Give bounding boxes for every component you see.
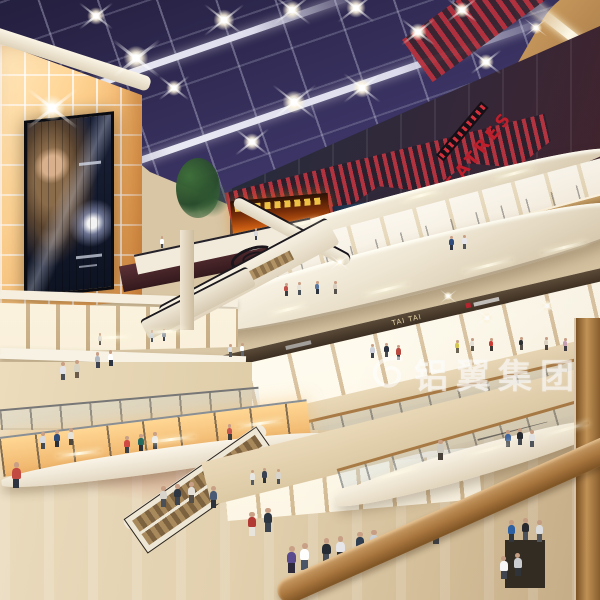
person-legs	[153, 443, 157, 449]
ceiling-starburst-light	[529, 21, 543, 35]
person	[124, 436, 130, 453]
person-torso	[124, 440, 130, 447]
person	[522, 518, 529, 540]
person	[228, 344, 232, 357]
person-legs	[13, 479, 19, 488]
person-torso	[174, 489, 181, 498]
person-torso	[322, 544, 331, 555]
person-torso	[500, 561, 508, 571]
person-legs	[109, 360, 113, 366]
person-torso	[160, 491, 167, 500]
person	[333, 281, 337, 294]
person-legs	[189, 495, 194, 503]
person-torso	[517, 432, 523, 439]
person	[449, 236, 454, 250]
shop-sign	[285, 340, 311, 350]
person-legs	[96, 362, 100, 368]
sparkle-light	[540, 299, 554, 313]
person-head	[161, 486, 166, 491]
person	[500, 556, 508, 579]
person-legs	[99, 341, 102, 345]
ceiling-starburst-light	[122, 44, 150, 72]
person-torso	[227, 428, 232, 435]
person-legs	[509, 534, 514, 542]
person	[287, 546, 296, 573]
advertising-billboard	[24, 111, 114, 298]
watermark-text: 铝翼集团	[414, 349, 582, 398]
person-torso	[536, 525, 543, 534]
person-torso	[108, 354, 113, 361]
dark-storefront	[505, 540, 545, 588]
person	[68, 428, 74, 445]
person	[12, 462, 21, 488]
person	[160, 236, 164, 248]
ceiling-starburst-light	[242, 132, 262, 152]
person-legs	[298, 290, 301, 295]
ceiling-starburst-light	[165, 79, 183, 97]
billboard-text-mark	[79, 264, 97, 268]
billboard-text-mark	[76, 253, 102, 259]
person-legs	[163, 337, 166, 341]
ceiling-starburst-light	[212, 8, 236, 32]
person	[254, 228, 258, 240]
person	[462, 235, 467, 249]
person-torso	[437, 444, 444, 452]
person	[40, 432, 46, 449]
person-legs	[265, 523, 271, 532]
person-head	[175, 484, 180, 489]
person-legs	[75, 372, 79, 378]
ceiling-starburst-light	[477, 53, 495, 71]
person-legs	[151, 338, 154, 342]
person-torso	[210, 491, 217, 500]
person	[297, 282, 301, 295]
person-legs	[139, 445, 143, 451]
person-head	[14, 462, 20, 468]
person-head	[109, 350, 113, 354]
person	[250, 470, 255, 485]
person	[248, 512, 256, 536]
ceiling-starburst-light	[281, 0, 303, 21]
person	[160, 486, 167, 507]
person	[54, 430, 60, 447]
person	[138, 434, 144, 451]
person-torso	[505, 434, 511, 441]
person-head	[189, 482, 194, 487]
billboard-text-mark	[79, 160, 101, 165]
person-torso	[529, 434, 535, 441]
shop-sign-red-logo	[465, 295, 501, 309]
person-legs	[41, 443, 45, 449]
ceiling-starburst-light	[453, 1, 471, 19]
person	[315, 281, 319, 294]
person-torso	[300, 549, 309, 560]
person-torso	[74, 364, 80, 372]
person-legs	[263, 478, 266, 483]
person-legs	[518, 439, 522, 445]
structural-column	[180, 230, 194, 330]
person-legs	[537, 534, 542, 542]
person	[264, 508, 272, 532]
person-torso	[287, 552, 296, 563]
person-legs	[450, 245, 453, 250]
person-torso	[248, 517, 256, 527]
person	[437, 440, 444, 460]
person-legs	[523, 532, 528, 540]
person-torso	[264, 513, 272, 523]
ceiling-starburst-light	[351, 77, 373, 99]
person-legs	[530, 441, 534, 447]
person-legs	[211, 500, 216, 508]
sparkle-light	[443, 291, 453, 301]
person	[60, 362, 66, 380]
ceiling-starburst-light	[37, 93, 67, 123]
person	[240, 343, 244, 356]
person	[227, 424, 232, 440]
person-legs	[125, 447, 129, 453]
person-torso	[508, 525, 515, 534]
person-torso	[336, 542, 345, 553]
person	[276, 469, 281, 484]
person-legs	[229, 352, 232, 357]
person-torso	[40, 436, 46, 443]
person-legs	[285, 291, 288, 296]
person-legs	[438, 453, 443, 460]
watermark: 铝翼集团	[368, 346, 588, 400]
person-torso	[514, 558, 522, 568]
person-legs	[334, 289, 337, 294]
person-torso	[54, 434, 60, 441]
person-legs	[463, 244, 466, 249]
person-legs	[55, 441, 59, 447]
person-torso	[138, 438, 144, 445]
person-legs	[249, 527, 255, 536]
person	[300, 543, 309, 570]
person	[536, 520, 543, 542]
sparkle-light	[334, 256, 346, 268]
person-legs	[161, 244, 164, 248]
person-torso	[522, 523, 529, 532]
person-legs	[241, 351, 244, 356]
person-legs	[161, 499, 166, 507]
person	[108, 350, 113, 366]
person	[529, 430, 535, 447]
person-legs	[69, 439, 73, 445]
sparkle-light	[480, 311, 494, 325]
person-legs	[288, 563, 294, 573]
ceiling-starburst-light	[281, 89, 307, 115]
red-logo-icon	[465, 302, 471, 308]
watermark-swirl-logo	[368, 353, 408, 393]
person-legs	[277, 479, 280, 484]
person-legs	[251, 480, 254, 485]
person-torso	[188, 487, 195, 496]
person-legs	[61, 374, 65, 380]
person-legs	[255, 236, 258, 240]
person	[95, 352, 100, 368]
person	[210, 486, 217, 508]
person-legs	[316, 289, 319, 294]
ceiling-starburst-light	[408, 22, 428, 42]
person-torso	[95, 356, 100, 363]
shop-sign-text-bar	[473, 297, 499, 307]
person-head	[96, 352, 100, 356]
mall-atrium-rendering: THEATRES TAI TAI	[0, 0, 600, 600]
person-head	[338, 536, 344, 542]
person	[517, 428, 523, 445]
person-legs	[228, 434, 232, 440]
person-legs	[515, 568, 520, 576]
person-head	[324, 538, 330, 544]
person	[188, 482, 195, 503]
person-torso	[60, 366, 66, 374]
person	[174, 484, 181, 505]
person	[514, 553, 522, 576]
person-legs	[501, 571, 506, 579]
tai-tai-shop-sign: TAI TAI	[391, 313, 422, 328]
ceiling-starburst-light	[86, 6, 106, 26]
person	[74, 360, 80, 378]
person-torso	[12, 468, 21, 479]
person-legs	[175, 497, 180, 505]
person-head	[228, 424, 232, 428]
person	[284, 283, 288, 296]
person-torso	[68, 432, 74, 439]
person	[508, 520, 515, 542]
indoor-tree	[198, 180, 228, 220]
person	[262, 468, 267, 483]
ceiling-starburst-light	[345, 0, 367, 19]
